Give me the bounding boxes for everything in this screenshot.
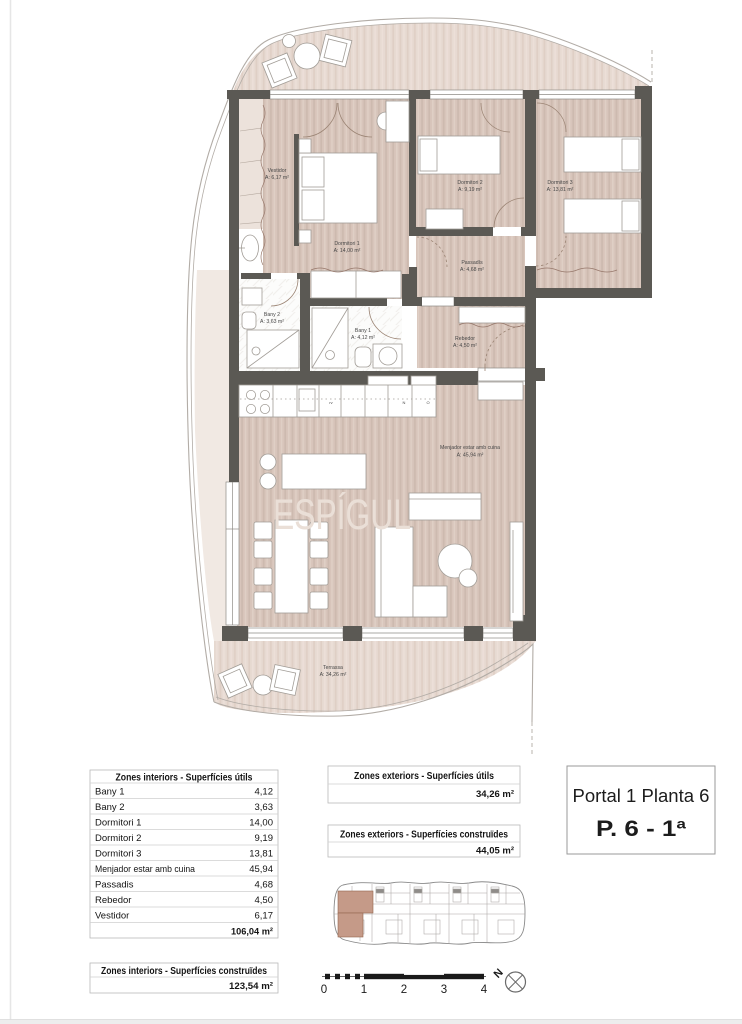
svg-text:44,05 m²: 44,05 m² xyxy=(476,846,514,857)
svg-text:3: 3 xyxy=(441,984,447,996)
svg-text:O: O xyxy=(426,400,429,405)
svg-text:0: 0 xyxy=(321,984,327,996)
svg-text:Rebedor: Rebedor xyxy=(95,895,131,906)
svg-text:Menjador estar amb cuina: Menjador estar amb cuina xyxy=(440,445,500,451)
svg-text:4: 4 xyxy=(481,984,488,996)
svg-text:A: 4,50 m²: A: 4,50 m² xyxy=(453,343,477,349)
svg-text:Dormitori 3: Dormitori 3 xyxy=(95,849,141,860)
svg-text:106,04 m²: 106,04 m² xyxy=(231,927,273,938)
svg-text:Dormitori 2: Dormitori 2 xyxy=(95,833,141,844)
svg-text:Portal 1 Planta 6: Portal 1 Planta 6 xyxy=(573,786,710,806)
svg-text:Vestidor: Vestidor xyxy=(268,168,287,174)
svg-text:Dormitori 2: Dormitori 2 xyxy=(457,180,482,186)
svg-text:Zones interiors - Superfícies: Zones interiors - Superfícies útils xyxy=(116,773,253,784)
svg-text:123,54 m²: 123,54 m² xyxy=(229,981,273,992)
svg-text:A: 4,68 m²: A: 4,68 m² xyxy=(460,267,484,273)
svg-text:Dormitori 1: Dormitori 1 xyxy=(95,818,141,829)
svg-text:P. 6 - 1ª: P. 6 - 1ª xyxy=(596,816,687,841)
svg-text:Zones exteriors - Superfícies: Zones exteriors - Superfícies construïde… xyxy=(340,830,508,841)
svg-text:Terrassa: Terrassa xyxy=(323,665,343,671)
svg-text:A: 9,19 m²: A: 9,19 m² xyxy=(458,187,482,193)
svg-text:4,12: 4,12 xyxy=(255,787,274,798)
svg-text:Zones interiors - Superfícies: Zones interiors - Superfícies construïde… xyxy=(101,966,267,977)
svg-text:45,94: 45,94 xyxy=(249,864,273,875)
svg-text:rv: rv xyxy=(329,400,332,405)
svg-text:N: N xyxy=(403,400,406,405)
svg-text:1: 1 xyxy=(361,984,367,996)
svg-text:Passadís: Passadís xyxy=(461,260,483,266)
svg-text:A: 13,81 m²: A: 13,81 m² xyxy=(547,187,574,193)
svg-text:A: 45,94 m²: A: 45,94 m² xyxy=(457,453,484,459)
svg-text:A: 34,26 m²: A: 34,26 m² xyxy=(320,672,347,678)
svg-text:A: 4,12 m²: A: 4,12 m² xyxy=(351,335,375,341)
svg-text:6,17: 6,17 xyxy=(255,911,274,922)
svg-text:Rebedor: Rebedor xyxy=(455,336,475,342)
svg-text:Passadis: Passadis xyxy=(95,880,134,891)
svg-text:Bany 1: Bany 1 xyxy=(95,787,125,798)
svg-text:Menjador estar amb cuina: Menjador estar amb cuina xyxy=(95,864,196,875)
svg-text:2: 2 xyxy=(401,984,407,996)
svg-text:A: 6,17 m²: A: 6,17 m² xyxy=(265,175,289,181)
svg-text:Vestidor: Vestidor xyxy=(95,911,129,922)
svg-text:Dormitori 3: Dormitori 3 xyxy=(547,180,572,186)
svg-text:Dormitori 1: Dormitori 1 xyxy=(334,241,359,247)
svg-text:A: 14,00 m²: A: 14,00 m² xyxy=(334,248,361,254)
svg-text:9,19: 9,19 xyxy=(255,833,274,844)
svg-text:ESPÍGUL: ESPÍGUL xyxy=(273,491,411,539)
svg-text:A: 3,63 m²: A: 3,63 m² xyxy=(260,319,284,325)
svg-text:Bany 2: Bany 2 xyxy=(264,312,280,318)
svg-text:14,00: 14,00 xyxy=(249,818,273,829)
svg-text:Bany 1: Bany 1 xyxy=(355,328,371,334)
svg-text:34,26 m²: 34,26 m² xyxy=(476,789,514,800)
svg-text:4,68: 4,68 xyxy=(255,880,274,891)
svg-text:Bany 2: Bany 2 xyxy=(95,802,125,813)
svg-text:13,81: 13,81 xyxy=(249,849,273,860)
svg-text:3,63: 3,63 xyxy=(255,802,274,813)
svg-text:Zones exteriors - Superfícies: Zones exteriors - Superfícies útils xyxy=(354,771,494,782)
svg-text:4,50: 4,50 xyxy=(255,895,274,906)
